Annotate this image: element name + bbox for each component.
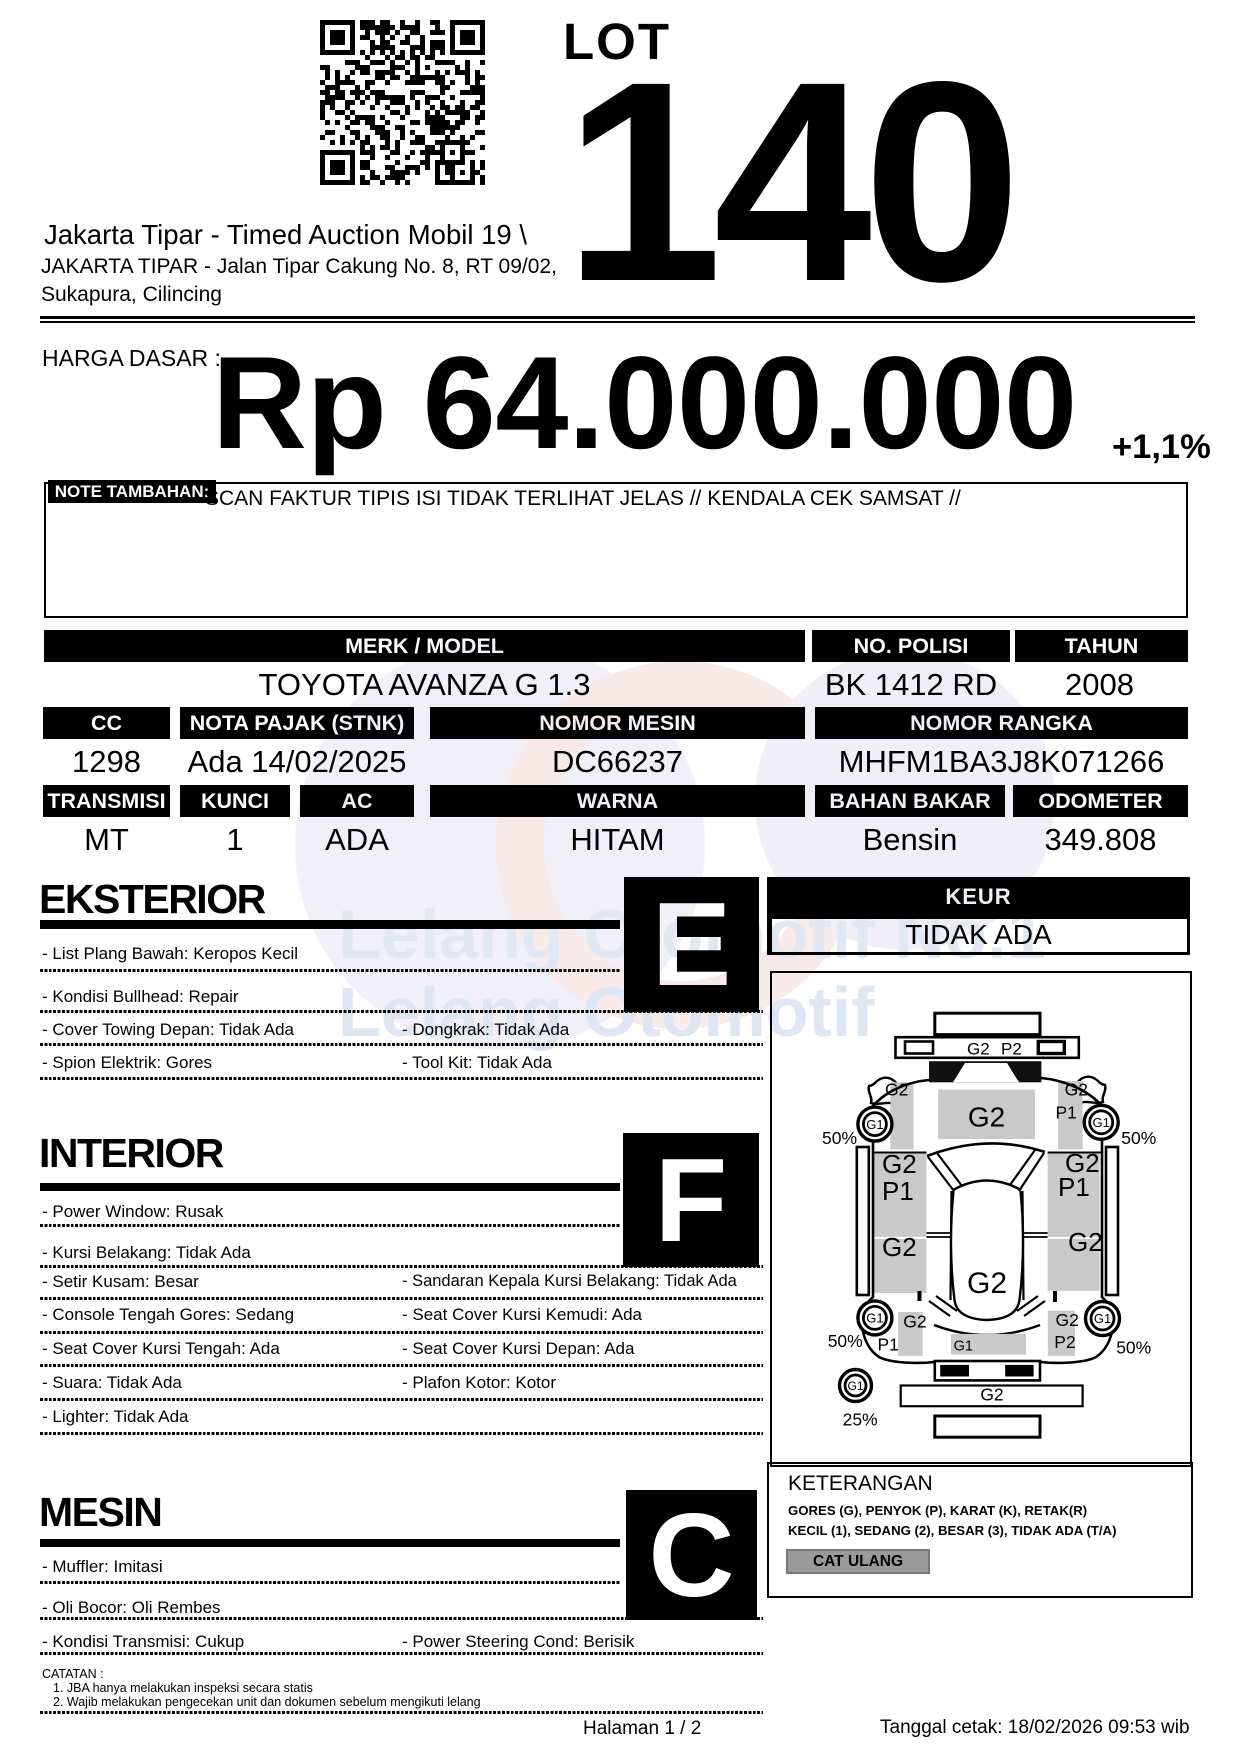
svg-text:G2: G2 bbox=[882, 1232, 917, 1262]
svg-text:P2: P2 bbox=[1054, 1332, 1075, 1352]
svg-text:G2: G2 bbox=[882, 1149, 917, 1179]
svg-text:P1: P1 bbox=[882, 1176, 914, 1206]
svg-text:G1: G1 bbox=[954, 1339, 973, 1355]
svg-text:G1: G1 bbox=[847, 1379, 863, 1393]
svg-text:50%: 50% bbox=[822, 1128, 857, 1148]
svg-text:G2: G2 bbox=[1056, 1310, 1079, 1330]
svg-text:G1: G1 bbox=[1093, 1115, 1110, 1130]
svg-text:G2: G2 bbox=[1065, 1080, 1088, 1100]
svg-text:G1: G1 bbox=[1094, 1311, 1111, 1326]
svg-text:G2: G2 bbox=[885, 1080, 908, 1100]
svg-text:G2: G2 bbox=[967, 1267, 1007, 1300]
svg-text:P1: P1 bbox=[878, 1335, 899, 1355]
svg-text:P2: P2 bbox=[1001, 1040, 1022, 1059]
svg-text:P1: P1 bbox=[1056, 1103, 1077, 1123]
svg-text:G1: G1 bbox=[866, 1311, 883, 1326]
svg-text:G2: G2 bbox=[1068, 1227, 1103, 1257]
svg-text:G2: G2 bbox=[903, 1312, 926, 1332]
svg-text:50%: 50% bbox=[1116, 1337, 1151, 1357]
svg-text:G1: G1 bbox=[866, 1117, 883, 1132]
svg-text:P1: P1 bbox=[1058, 1172, 1090, 1202]
svg-text:G2: G2 bbox=[968, 1102, 1005, 1133]
svg-text:G2: G2 bbox=[980, 1385, 1003, 1405]
svg-text:50%: 50% bbox=[1121, 1128, 1156, 1148]
svg-text:G2: G2 bbox=[967, 1040, 990, 1059]
svg-text:50%: 50% bbox=[828, 1331, 863, 1351]
svg-text:25%: 25% bbox=[843, 1410, 878, 1430]
